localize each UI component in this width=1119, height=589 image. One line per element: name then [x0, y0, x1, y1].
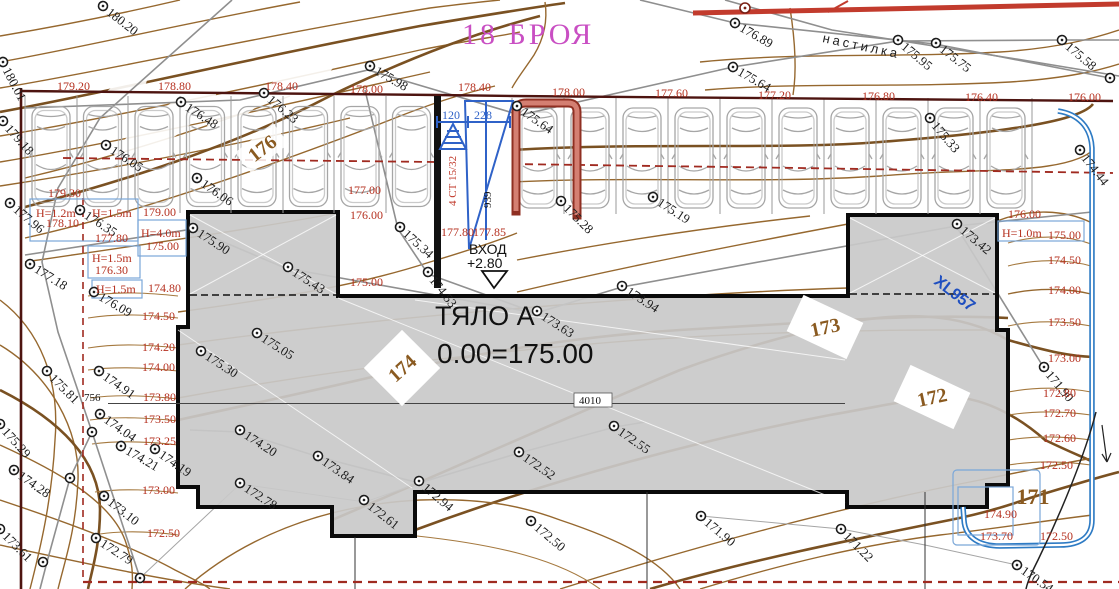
contour-elevation-label: 174.00	[142, 360, 175, 374]
contour-elevation-label: 172.60	[1043, 431, 1076, 445]
parked-car-icon	[672, 108, 716, 208]
spot-elevation-value: 171.90	[702, 515, 739, 549]
survey-marker-icon	[1106, 74, 1115, 83]
contour-elevation-label: 179.00	[143, 205, 176, 219]
survey-marker-icon	[88, 428, 97, 437]
parked-car-icon	[984, 108, 1028, 208]
crane-type: 4 СТ 15/32	[447, 156, 459, 206]
spot-elevation: 176.89	[727, 14, 775, 51]
contour-index-label: 171	[1017, 484, 1050, 509]
contour-elevation-label: 179.30	[48, 186, 81, 200]
flow-arrow-icon	[1102, 425, 1111, 462]
contour-elevation-label: 174.00	[1048, 283, 1081, 297]
contour-elevation-label: 174.80	[148, 281, 181, 295]
wall-height-label: H=1.5m	[92, 251, 132, 265]
spot-elevation: 173.61	[0, 521, 36, 565]
dim-756: 756	[84, 392, 101, 404]
survey-marker-icon	[136, 574, 145, 583]
contour-elevation-label: 178.40	[458, 80, 491, 94]
contour-elevation-label: 172.50	[147, 526, 180, 540]
contour-elevation-label: 176.80	[862, 89, 895, 103]
contour-elevation-label: 178.80	[158, 79, 191, 93]
spot-elevation-value: 175.19	[655, 195, 693, 227]
contour-elevation-label: 176.40	[965, 90, 998, 104]
contour-elevation-label: 179.20	[57, 79, 90, 93]
crane-dim-right: 228	[474, 108, 492, 122]
contour-elevation-label: 177.20	[758, 88, 791, 102]
contour-elevation-label: 172.70	[1043, 406, 1076, 420]
crane-length: 939	[482, 191, 494, 208]
parked-car-icon	[828, 108, 872, 208]
parked-car-icon	[776, 108, 820, 208]
contour-elevation-label: 176.00	[1008, 207, 1041, 221]
parked-car-icon	[724, 108, 768, 208]
contour-elevation-label: 172.50	[1040, 458, 1073, 472]
contour-elevation-label: 176.00	[350, 208, 383, 222]
building-level: 0.00=175.00	[437, 338, 594, 369]
contour-elevation-label: 173.50	[143, 412, 176, 426]
spot-elevation: 174.04	[92, 405, 140, 445]
contour-elevation-label: 178.00	[350, 82, 383, 96]
spot-elevation-value: 175.34	[400, 226, 437, 261]
spot-elevation-value: 172.50	[532, 520, 569, 554]
crane-dim-left: 120	[442, 108, 460, 122]
contour-elevation-label: 175.00	[350, 275, 383, 289]
spot-elevation-value: 175.29	[0, 424, 34, 461]
wall-height-label: H=1.2m	[36, 206, 76, 220]
contour-elevation-label: 174.50	[142, 309, 175, 323]
contour-elevation-label: 178.40	[265, 79, 298, 93]
parked-car-icon	[880, 108, 924, 208]
svg-text:171: 171	[1017, 484, 1050, 509]
survey-marker-icon	[39, 558, 48, 567]
contour-elevation-label: 173.80	[143, 390, 176, 404]
spot-elevation: 170.54	[1009, 556, 1057, 589]
entrance-height: +2.80	[467, 255, 503, 271]
contour-elevation-label: 172.50	[1040, 529, 1073, 543]
spot-elevation: 180.20	[95, 0, 141, 38]
wall-height-label: H=4.0m	[141, 226, 181, 240]
spot-elevation: 180.01	[0, 55, 30, 104]
contour-elevation-label: 175.00	[146, 239, 179, 253]
contour-elevation-label: 173.70	[980, 529, 1013, 543]
site-plan: 4010 756	[0, 0, 1119, 589]
plan-title: 18 БРОЯ	[462, 18, 594, 51]
contour-elevation-label: 175.00	[1048, 228, 1081, 242]
wall-height-label: H=1.0m	[1002, 226, 1042, 240]
contour-elevation-label: 172.80	[1043, 386, 1076, 400]
parked-car-icon	[620, 108, 664, 208]
contour-elevation-label: 174.90	[984, 507, 1017, 521]
wall-height-label: H=1.5m	[92, 206, 132, 220]
spot-elevation-value: 175.75	[937, 41, 974, 75]
contour-elevation-label: 173.00	[1048, 351, 1081, 365]
contour-elevation-label: 177.00	[348, 183, 381, 197]
contour-elevation-label: 173.25	[143, 434, 176, 448]
spot-elevation-value: 172.79	[98, 536, 136, 568]
spot-elevation-value: 174.04	[101, 412, 139, 445]
spot-elevation-value: 173.10	[105, 494, 142, 528]
wall-height-label: H=1.5m	[96, 282, 136, 296]
spot-elevation-value: 174.44	[1078, 151, 1112, 189]
contour-elevation-label: 178.00	[552, 85, 585, 99]
dim-4010: 4010	[579, 395, 602, 407]
contour-elevation-label: 174.50	[1048, 253, 1081, 267]
entrance-marker-icon	[482, 271, 507, 288]
spot-elevation-value: 177.18	[32, 261, 70, 293]
contour-elevation-label: 173.50	[1048, 315, 1081, 329]
spot-elevation: 177.18	[22, 255, 70, 293]
contour-elevation-label: 176.30	[95, 263, 128, 277]
survey-marker-icon	[66, 474, 75, 483]
parked-car-icon	[390, 107, 434, 207]
spot-elevation: 172.50	[523, 512, 569, 554]
contour-elevation-label: 176.00	[1068, 90, 1101, 104]
spot-elevation: 175.29	[0, 416, 34, 461]
contour-elevation-label: 177.60	[655, 86, 688, 100]
contour-elevation-label: 173.00	[142, 483, 175, 497]
building-name: ТЯЛО А	[435, 301, 535, 331]
contour-elevation-label: 177.85	[473, 225, 506, 239]
site-plan-canvas: 4010 756	[0, 0, 1119, 589]
spot-elevation: 175.34	[392, 218, 438, 261]
derrick-icon	[440, 124, 466, 149]
contour-elevation-label: 174.20	[142, 340, 175, 354]
contour-elevation-label: 177.80	[95, 231, 128, 245]
contour-elevation-label: 177.80	[441, 225, 474, 239]
spot-elevation-value: 170.54	[1018, 563, 1056, 589]
